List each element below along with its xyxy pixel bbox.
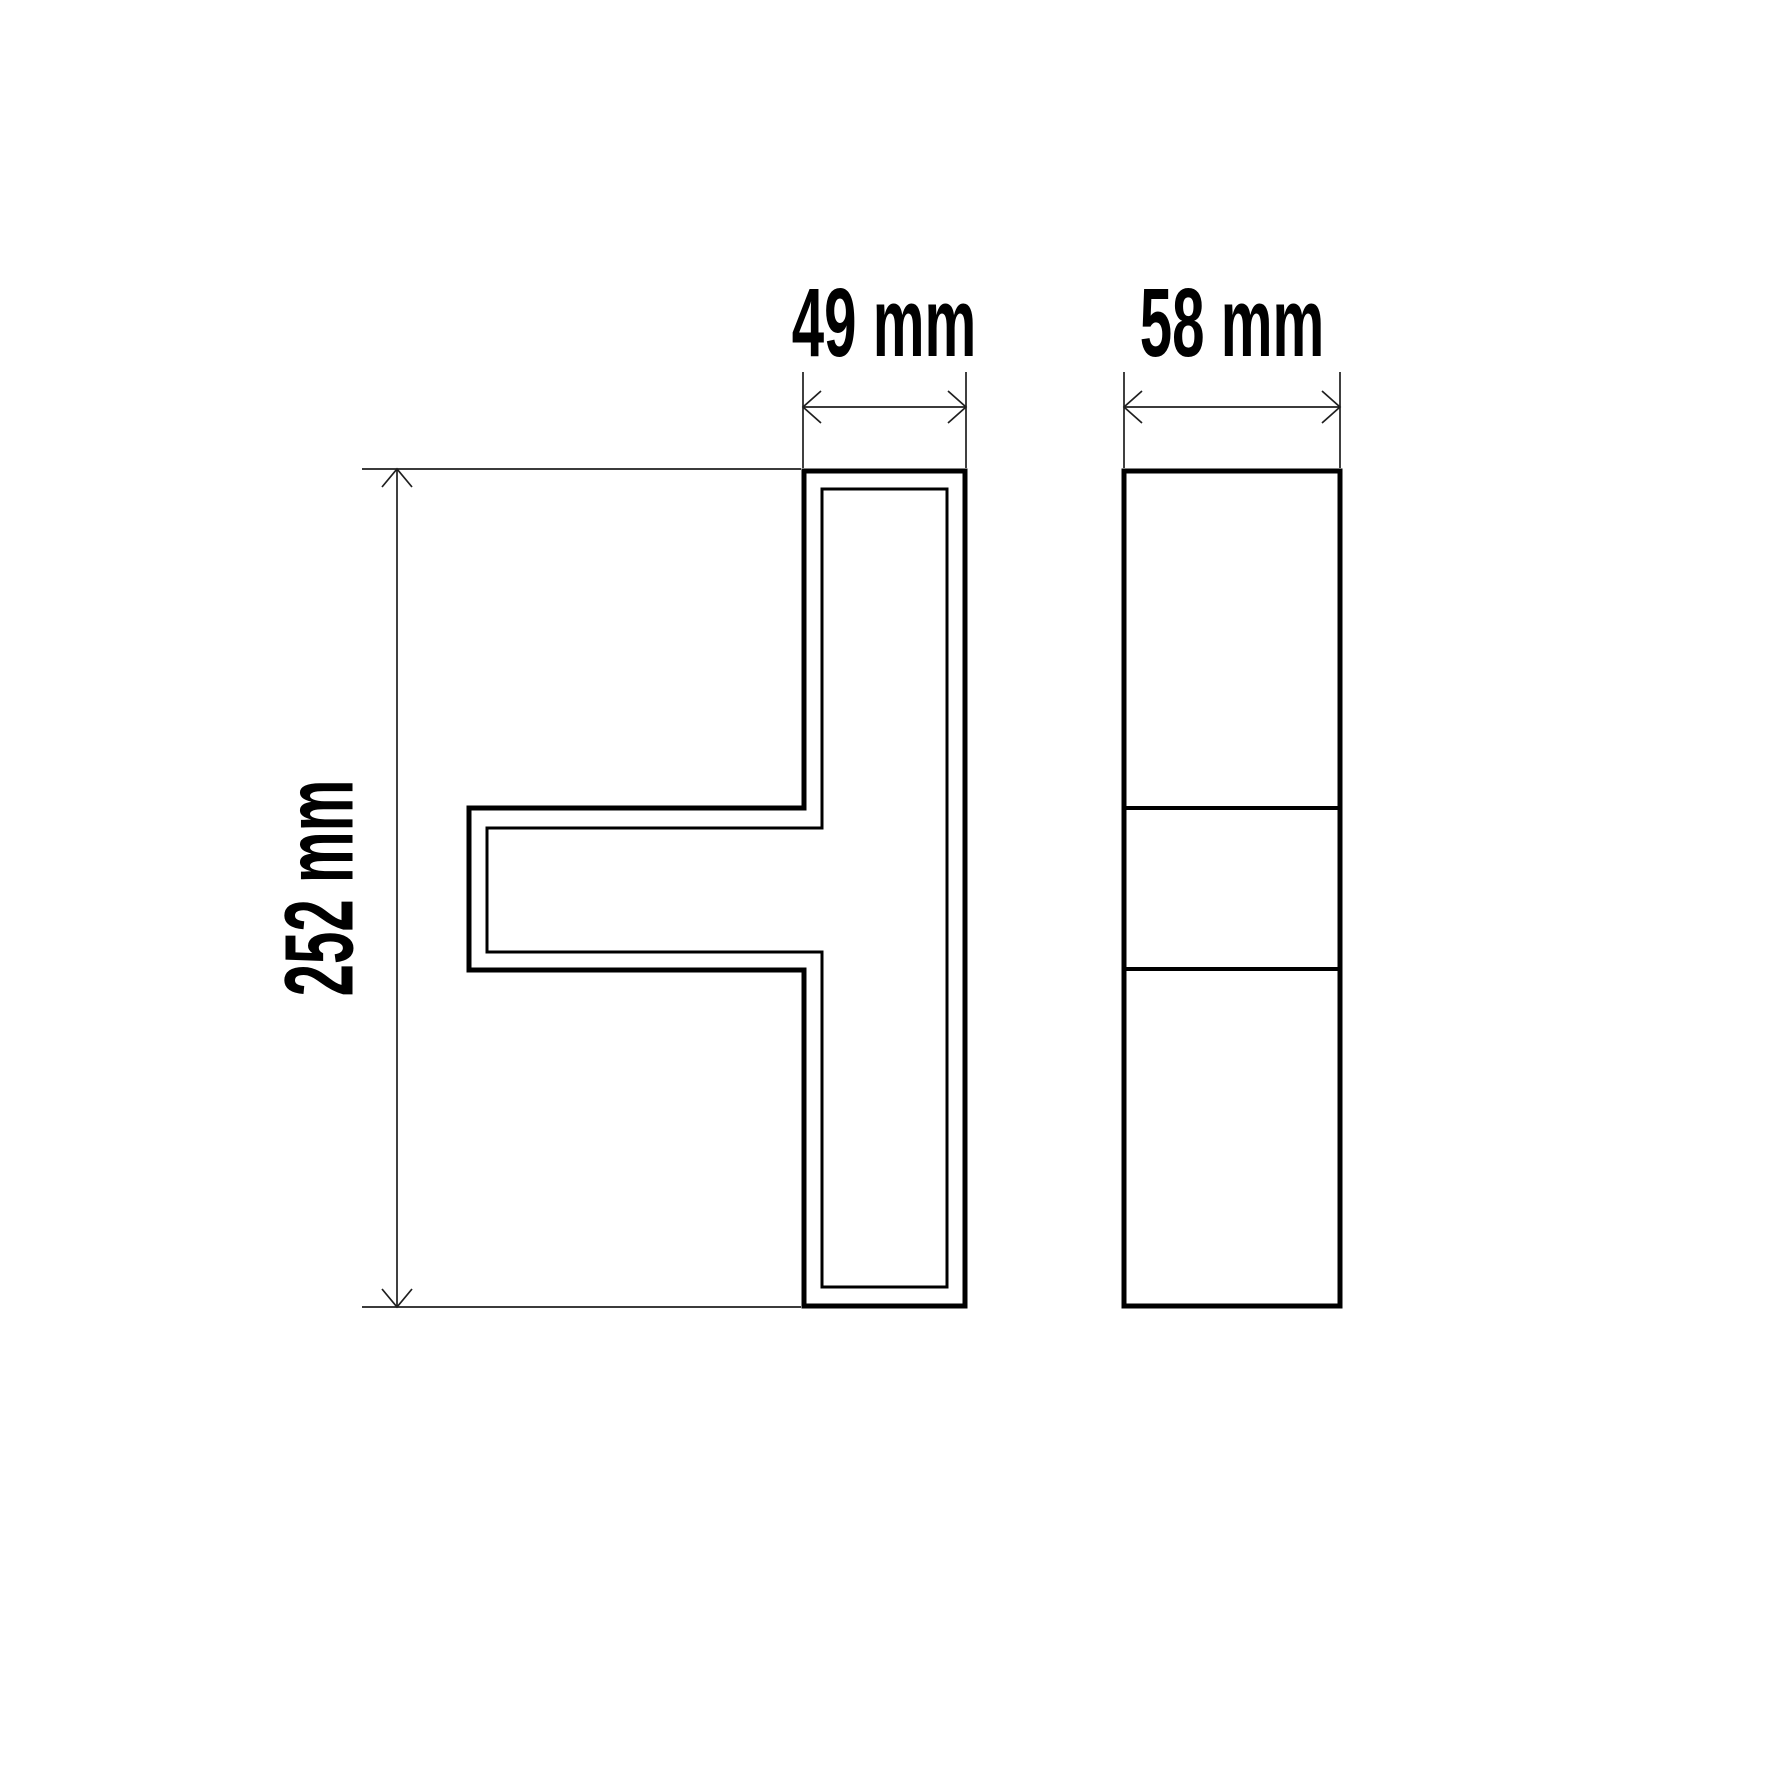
drawing-canvas: 49 mm 58 mm 252 mm <box>0 0 1778 1778</box>
height-dimension <box>362 469 801 1307</box>
width-dimension-label: 49 mm <box>792 274 976 371</box>
front-view <box>469 471 965 1306</box>
front-view-outer-outline <box>469 471 965 1306</box>
side-view <box>1124 471 1340 1306</box>
depth-dimension <box>1124 372 1340 468</box>
depth-dimension-label: 58 mm <box>1140 274 1324 371</box>
width-dimension <box>803 372 966 468</box>
side-view-outline <box>1124 471 1340 1306</box>
front-view-inner-outline <box>487 489 947 1287</box>
height-dimension-label: 252 mm <box>271 780 368 997</box>
